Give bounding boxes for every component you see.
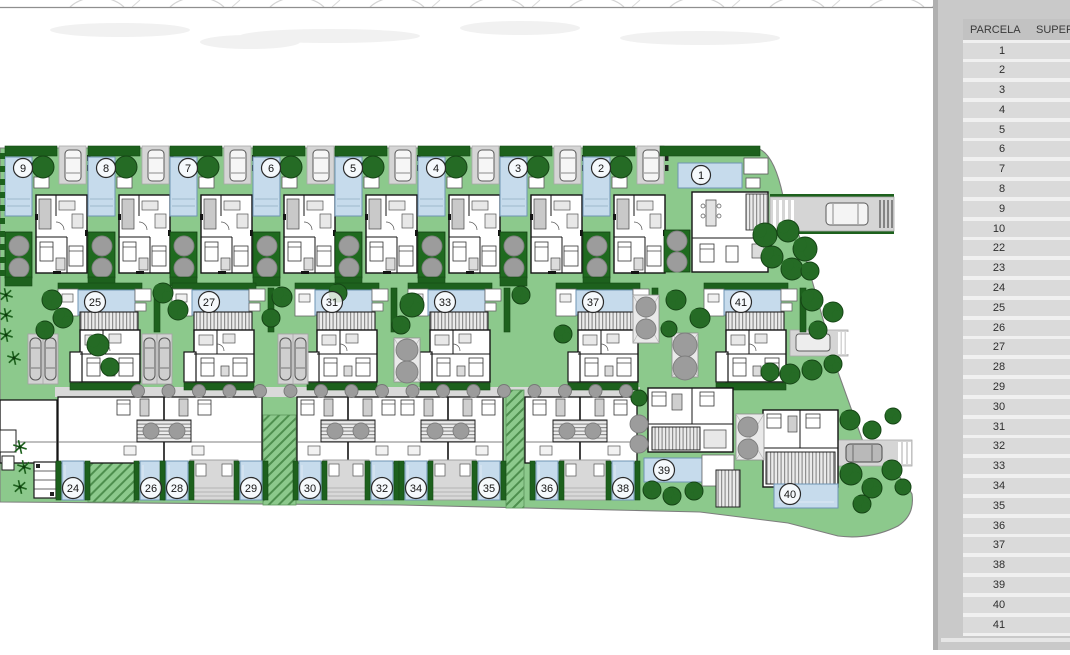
- plan-shape: [383, 271, 391, 274]
- superficie-cell[interactable]: 330,: [1009, 579, 1070, 591]
- parcela-cell[interactable]: 29: [963, 381, 1009, 393]
- parcela-cell[interactable]: 38: [963, 559, 1009, 571]
- hedge: [293, 461, 298, 500]
- parcel-marker-26: 26: [141, 478, 162, 499]
- table: [746, 178, 760, 188]
- tree: [789, 372, 799, 382]
- plan-shape: [372, 289, 388, 301]
- plan-shape: [846, 332, 849, 354]
- plan-shape: [717, 214, 721, 218]
- gray-tree: [427, 423, 443, 439]
- plan-shape: [250, 230, 253, 236]
- parcel-number-label: 36: [541, 483, 553, 495]
- parcela-cell[interactable]: 22: [963, 242, 1009, 254]
- tree: [787, 229, 798, 240]
- carport: [278, 334, 308, 384]
- table: [199, 177, 214, 188]
- parcela-cell[interactable]: 24: [963, 282, 1009, 294]
- table-row[interactable]: 37429,: [963, 537, 1070, 553]
- rear-terrace: [323, 460, 369, 500]
- parcela-cell[interactable]: 34: [963, 480, 1009, 492]
- plan-shape: [469, 258, 478, 270]
- hedge: [189, 461, 194, 500]
- parcela-cell[interactable]: 35: [963, 500, 1009, 512]
- hedge: [85, 461, 90, 500]
- plan-shape: [532, 0, 540, 7]
- superficie-cell[interactable]: 305,: [1009, 84, 1070, 96]
- parcela-cell[interactable]: 1: [963, 45, 1009, 57]
- plan-shape: [652, 392, 666, 406]
- parcel-number-label: 26: [145, 483, 157, 495]
- gray-tree: [559, 423, 575, 439]
- parcel-number-label: 31: [326, 297, 338, 309]
- gray-tree: [339, 258, 359, 278]
- parcela-cell[interactable]: 41: [963, 619, 1009, 631]
- parcel-number-label: 7: [185, 163, 191, 175]
- parcel-number-label: 27: [203, 297, 215, 309]
- superficie-cell[interactable]: 155,: [1009, 520, 1070, 532]
- parcela-cell[interactable]: 40: [963, 599, 1009, 611]
- parcela-cell[interactable]: 6: [963, 143, 1009, 155]
- table-row[interactable]: 22304,: [963, 240, 1070, 256]
- tree: [51, 298, 61, 308]
- street-tree: [345, 385, 358, 398]
- table-row[interactable]: 5307,: [963, 122, 1070, 138]
- parcel-marker-37: 37: [583, 292, 604, 313]
- plan-shape: [70, 0, 124, 7]
- plan-shape: [701, 214, 705, 218]
- plan-shape: [36, 464, 40, 468]
- plan-shape: [320, 214, 331, 228]
- carport: [28, 334, 58, 384]
- panel-divider: [933, 0, 938, 650]
- table-row[interactable]: 34154,: [963, 478, 1070, 494]
- superficie-cell[interactable]: 156,: [1009, 559, 1070, 571]
- plan-shape: [4, 313, 7, 316]
- plan-shape: [594, 464, 604, 476]
- plan-shape: [595, 399, 604, 416]
- car: [395, 150, 411, 181]
- parcel-marker-3: 3: [509, 159, 528, 178]
- plan-shape: [457, 366, 465, 376]
- plan-shape: [781, 303, 792, 311]
- plan-shape: [903, 442, 906, 464]
- table-row[interactable]: 2305,: [963, 62, 1070, 78]
- table-row[interactable]: 28153,: [963, 359, 1070, 375]
- hedge: [530, 461, 535, 500]
- table-row[interactable]: 7308,: [963, 161, 1070, 177]
- superficie-cell[interactable]: 333,: [1009, 341, 1070, 353]
- plan-shape: [650, 214, 661, 228]
- superficie-cell[interactable]: 154,: [1009, 480, 1070, 492]
- parcela-cell[interactable]: 30: [963, 401, 1009, 413]
- parcela-cell[interactable]: 27: [963, 341, 1009, 353]
- plan-shape: [50, 23, 190, 37]
- parcela-cell[interactable]: 8: [963, 183, 1009, 195]
- hedge: [500, 277, 527, 286]
- table-row[interactable]: 41500,: [963, 617, 1070, 633]
- plan-shape: [459, 334, 471, 343]
- parcel-number-label: 1: [698, 170, 704, 182]
- superficie-cell[interactable]: 154,: [1009, 401, 1070, 413]
- table-row[interactable]: 25333,: [963, 300, 1070, 316]
- hedge: [70, 383, 140, 390]
- booth: [716, 470, 740, 507]
- plan-shape: [435, 335, 449, 345]
- table-row[interactable]: 4306,: [963, 102, 1070, 118]
- superficie-cell[interactable]: 644,: [1009, 599, 1070, 611]
- table-row[interactable]: 29153,: [963, 379, 1070, 395]
- tree: [764, 233, 776, 245]
- plan-shape: [237, 214, 248, 228]
- parcel-number-label: 5: [350, 163, 356, 175]
- plan-shape: [482, 400, 495, 415]
- table-row[interactable]: 27333,: [963, 339, 1070, 355]
- plan-shape: [618, 242, 631, 261]
- parcela-cell[interactable]: 4: [963, 104, 1009, 116]
- plan-shape: [155, 214, 166, 228]
- table: [299, 294, 310, 302]
- table-row[interactable]: 10309,: [963, 221, 1070, 237]
- superficie-cell[interactable]: 154,: [1009, 440, 1070, 452]
- parcel-number-label: 40: [784, 489, 796, 501]
- street-tree: [162, 385, 175, 398]
- parcela-cell[interactable]: 32: [963, 440, 1009, 452]
- plan-shape: [607, 334, 619, 343]
- gray-tree: [585, 423, 601, 439]
- tree: [871, 486, 881, 496]
- parcel-marker-34: 34: [406, 478, 427, 499]
- parcel-marker-40: 40: [780, 484, 801, 505]
- table-row[interactable]: 30154,: [963, 399, 1070, 415]
- plan-shape: [842, 332, 845, 354]
- parcel-marker-7: 7: [179, 159, 198, 178]
- plan-shape: [324, 399, 333, 416]
- plan-shape: [233, 358, 247, 376]
- plan-shape: [401, 400, 414, 415]
- plan-shape: [370, 242, 383, 261]
- plan-shape: [12, 356, 15, 359]
- rear-terrace: [560, 460, 610, 500]
- plan-shape: [223, 334, 235, 343]
- table-row[interactable]: 6307,: [963, 141, 1070, 157]
- parcel-marker-33: 33: [435, 292, 456, 313]
- hedge: [263, 461, 268, 500]
- parcela-cell[interactable]: 7: [963, 163, 1009, 175]
- hedge: [253, 146, 305, 156]
- parcela-cell[interactable]: 3: [963, 84, 1009, 96]
- superficie-cell[interactable]: 153,: [1009, 322, 1070, 334]
- plan-shape: [0, 270, 5, 276]
- table-row[interactable]: 9309,: [963, 201, 1070, 217]
- hedge: [428, 461, 433, 500]
- plan-shape: [40, 242, 53, 261]
- plan-shape: [717, 204, 721, 208]
- car: [148, 150, 164, 181]
- terrace: [295, 289, 315, 316]
- street-tree: [284, 385, 297, 398]
- terrace: [744, 158, 768, 174]
- plan-shape: [755, 334, 767, 343]
- parcel-marker-28: 28: [167, 478, 188, 499]
- plan-shape: [631, 271, 639, 274]
- superficie-cell[interactable]: 304,: [1009, 242, 1070, 254]
- street-tree: [406, 385, 419, 398]
- plan-shape: [566, 464, 576, 476]
- parcel-number-label: 38: [617, 483, 629, 495]
- table-row[interactable]: 24152,: [963, 280, 1070, 296]
- house-wing: [420, 352, 432, 382]
- plan-shape: [402, 214, 413, 228]
- plan-shape: [4, 333, 7, 336]
- plan-shape: [770, 194, 894, 197]
- plan-shape: [570, 0, 624, 7]
- parcela-cell[interactable]: 23: [963, 262, 1009, 274]
- superficie-cell[interactable]: 306,: [1009, 104, 1070, 116]
- table-row[interactable]: 36155,: [963, 518, 1070, 534]
- parcela-cell[interactable]: 33: [963, 460, 1009, 472]
- gray-tree: [327, 423, 343, 439]
- street-tree: [559, 385, 572, 398]
- parcel-marker-30: 30: [300, 478, 321, 499]
- table-row[interactable]: 8308,: [963, 181, 1070, 197]
- plan-shape: [564, 246, 578, 266]
- parcela-cell[interactable]: 2: [963, 64, 1009, 76]
- parcel-marker-41: 41: [731, 292, 752, 313]
- tree: [675, 298, 685, 308]
- plan-shape: [249, 303, 260, 311]
- superficie-cell[interactable]: 333,: [1009, 421, 1070, 433]
- car: [295, 338, 306, 380]
- parcela-cell[interactable]: 28: [963, 361, 1009, 373]
- superficie-cell[interactable]: 155,: [1009, 500, 1070, 512]
- gray-tree: [169, 423, 185, 439]
- plan-shape: [353, 464, 363, 476]
- plan-shape: [204, 199, 216, 229]
- parcela-cell[interactable]: 31: [963, 421, 1009, 433]
- table-row[interactable]: 39330,: [963, 577, 1070, 593]
- tree: [109, 365, 118, 374]
- table-row[interactable]: 3305,: [963, 82, 1070, 98]
- plan-shape: [117, 400, 130, 415]
- car: [478, 150, 494, 181]
- street-tree: [193, 385, 206, 398]
- plan-shape: [382, 400, 395, 415]
- plan-shape: [192, 446, 204, 455]
- plan-shape: [634, 258, 643, 270]
- parcel-marker-24: 24: [63, 478, 84, 499]
- street-tree: [315, 385, 328, 398]
- tree: [411, 303, 423, 315]
- parcel-number-label: 37: [587, 297, 599, 309]
- superficie-cell[interactable]: 153,: [1009, 361, 1070, 373]
- parcela-cell[interactable]: 10: [963, 223, 1009, 235]
- gray-tree: [738, 417, 758, 437]
- hedge: [234, 461, 239, 500]
- gray-tree: [92, 258, 112, 278]
- tree: [651, 488, 660, 497]
- street-tree: [467, 385, 480, 398]
- parcel-number-label: 41: [735, 297, 747, 309]
- plan-shape: [620, 31, 780, 45]
- roof-deck: [80, 312, 138, 332]
- table-row[interactable]: 31333,: [963, 419, 1070, 435]
- plan-shape: [304, 258, 313, 270]
- parcel-number-label: 34: [410, 483, 422, 495]
- plan-shape: [87, 358, 100, 376]
- plan-shape: [472, 201, 488, 210]
- plan-shape: [222, 464, 232, 476]
- plan-shape: [435, 464, 445, 476]
- plan-shape: [205, 242, 218, 261]
- plan-shape: [200, 214, 203, 220]
- parcela-cell[interactable]: 9: [963, 203, 1009, 215]
- plan-shape: [232, 0, 240, 7]
- superficie-cell[interactable]: 308,: [1009, 183, 1070, 195]
- table-row[interactable]: 1466,: [963, 43, 1070, 59]
- hedge: [660, 146, 760, 156]
- parcela-cell[interactable]: 36: [963, 520, 1009, 532]
- superficie-cell[interactable]: 307,: [1009, 124, 1070, 136]
- hedge: [88, 146, 140, 156]
- plan-shape: [731, 335, 745, 345]
- plan-shape: [18, 445, 21, 448]
- plan-shape: [0, 244, 5, 250]
- parcela-cell[interactable]: 39: [963, 579, 1009, 591]
- parcela-cell[interactable]: 5: [963, 124, 1009, 136]
- gray-tree: [396, 361, 418, 383]
- header-superficie: SUPERF: [1021, 24, 1070, 36]
- table: [529, 177, 544, 188]
- plan-shape: [72, 214, 83, 228]
- plan-shape: [415, 230, 418, 236]
- superficie-cell[interactable]: 500,: [1009, 619, 1070, 631]
- table-row[interactable]: 32154,: [963, 438, 1070, 454]
- parcel-number-label: 9: [20, 163, 26, 175]
- parcel-number-label: 2: [598, 163, 604, 175]
- superficie-cell[interactable]: 333,: [1009, 302, 1070, 314]
- parcel-number-label: 39: [658, 465, 670, 477]
- superficie-cell[interactable]: 334,: [1009, 262, 1070, 274]
- hedge: [583, 146, 635, 156]
- superficie-cell[interactable]: 309,: [1009, 223, 1070, 235]
- plan-shape: [704, 430, 726, 448]
- plan-shape: [583, 335, 597, 345]
- table-row[interactable]: 33333,: [963, 458, 1070, 474]
- plan-shape: [0, 153, 5, 159]
- plan-shape: [605, 366, 613, 376]
- header-parcela: PARCELA: [963, 24, 1021, 36]
- plan-shape: [0, 257, 5, 263]
- car: [45, 338, 56, 380]
- tree: [769, 370, 778, 379]
- plan-shape: [199, 335, 213, 345]
- plan-shape: [301, 271, 309, 274]
- plan-shape: [753, 366, 761, 376]
- gray-tree: [667, 231, 687, 251]
- superficie-cell[interactable]: 333,: [1009, 460, 1070, 472]
- tree: [115, 156, 137, 178]
- street-tree: [620, 385, 633, 398]
- tree: [610, 156, 632, 178]
- gray-tree: [257, 258, 277, 278]
- plan-shape: [0, 166, 5, 172]
- table-row[interactable]: 35155,: [963, 498, 1070, 514]
- parcela-cell[interactable]: 25: [963, 302, 1009, 314]
- roof-deck: [652, 427, 700, 450]
- plan-shape: [482, 246, 496, 266]
- parcel-marker-29: 29: [241, 478, 262, 499]
- plan-shape: [122, 199, 134, 229]
- tree: [811, 298, 822, 309]
- hedge: [365, 461, 370, 500]
- superficie-cell[interactable]: 153,: [1009, 381, 1070, 393]
- superficie-cell[interactable]: 429,: [1009, 539, 1070, 551]
- superficie-cell[interactable]: 309,: [1009, 203, 1070, 215]
- table-row[interactable]: 40644,: [963, 597, 1070, 613]
- parcel-marker-5: 5: [344, 159, 363, 178]
- plan-shape: [460, 464, 470, 476]
- parcel-number-label: 28: [171, 483, 183, 495]
- plan-shape: [200, 35, 300, 49]
- table-row[interactable]: 26153,: [963, 320, 1070, 336]
- table: [62, 294, 73, 302]
- superficie-cell[interactable]: 305,: [1009, 64, 1070, 76]
- plan-shape: [218, 271, 226, 274]
- gray-tree: [174, 236, 194, 256]
- plan-shape: [329, 464, 339, 476]
- superficie-cell[interactable]: 308,: [1009, 163, 1070, 175]
- house-wing: [184, 352, 196, 382]
- tree: [849, 418, 859, 428]
- top-watermark: [0, 0, 935, 49]
- parcel-marker-8: 8: [97, 159, 116, 178]
- superficie-cell[interactable]: 466,: [1009, 45, 1070, 57]
- hedge: [335, 146, 387, 156]
- hedge: [418, 146, 470, 156]
- parcel-table: PARCELA SUPERF 1466,2305,3305,4306,5307,…: [963, 19, 1070, 636]
- street-tree: [589, 385, 602, 398]
- table: [612, 177, 627, 188]
- hedge: [5, 277, 32, 286]
- table-row[interactable]: 23334,: [963, 260, 1070, 276]
- superficie-cell[interactable]: 307,: [1009, 143, 1070, 155]
- gray-tree: [143, 423, 159, 439]
- superficie-cell[interactable]: 152,: [1009, 282, 1070, 294]
- table-row[interactable]: 38156,: [963, 557, 1070, 573]
- tree: [527, 156, 549, 178]
- parcel-number-label: 32: [376, 483, 388, 495]
- parcela-cell[interactable]: 26: [963, 322, 1009, 334]
- plan-shape: [22, 465, 25, 468]
- gray-tree: [396, 339, 418, 361]
- plan-shape: [448, 214, 451, 220]
- plan-shape: [788, 416, 797, 432]
- parcel-number-label: 24: [67, 483, 79, 495]
- tree: [668, 327, 676, 335]
- table-header-row: PARCELA SUPERF: [963, 19, 1070, 40]
- parcela-cell[interactable]: 37: [963, 539, 1009, 551]
- gray-tree: [636, 297, 656, 317]
- rear-terrace: [190, 460, 238, 500]
- tree: [32, 156, 54, 178]
- hedge: [606, 461, 611, 500]
- gray-tree: [257, 236, 277, 256]
- plan-shape: [548, 271, 556, 274]
- plan-shape: [647, 246, 661, 266]
- plan-shape: [870, 0, 924, 7]
- plan-shape: [700, 392, 714, 406]
